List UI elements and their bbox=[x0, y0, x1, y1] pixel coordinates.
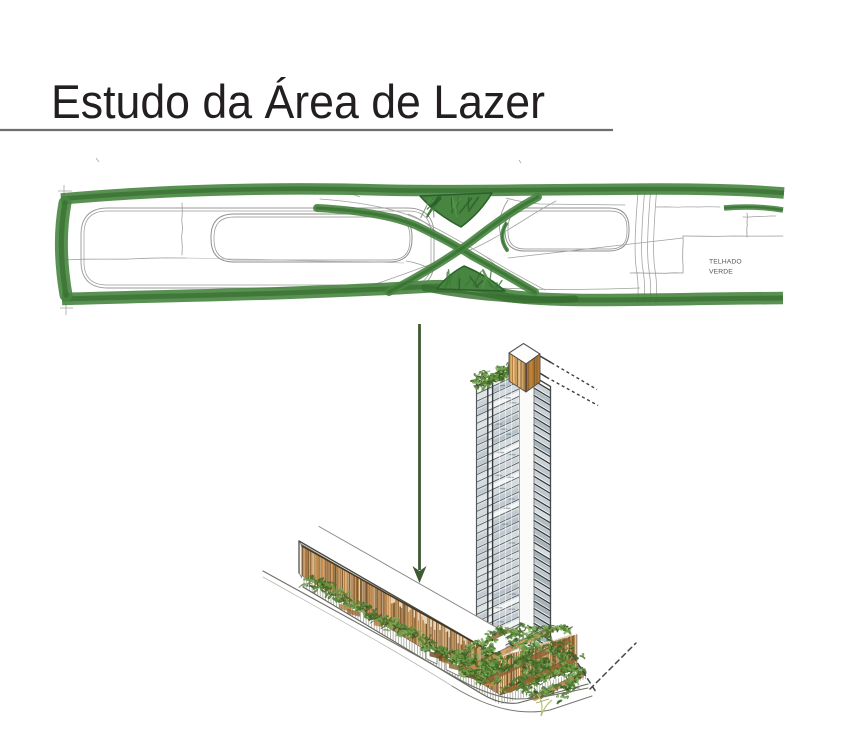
svg-text:Estudo da Área de Lazer: Estudo da Área de Lazer bbox=[51, 75, 545, 128]
svg-text:VERDE: VERDE bbox=[709, 269, 733, 276]
svg-text:TELHADO: TELHADO bbox=[709, 259, 742, 266]
